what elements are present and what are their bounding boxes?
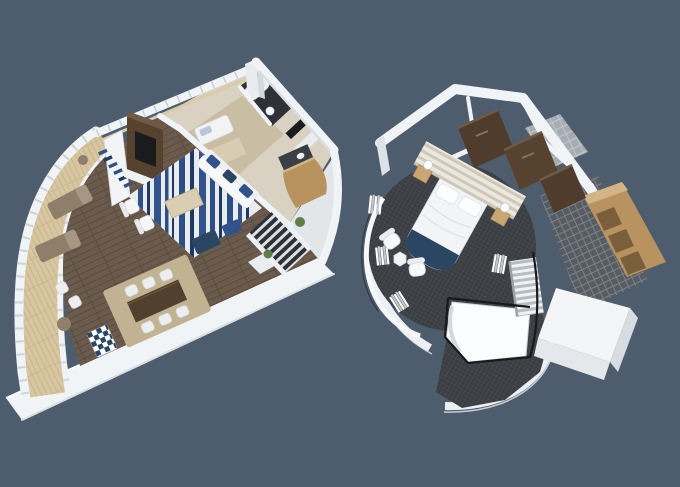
plant — [295, 217, 305, 227]
balcony-side-table — [78, 155, 88, 165]
toilet — [266, 107, 274, 115]
balcony-pouf — [57, 317, 71, 331]
side-table — [394, 252, 406, 266]
floorplan-render — [0, 0, 680, 487]
plant — [264, 250, 273, 259]
render-canvas — [0, 0, 680, 487]
